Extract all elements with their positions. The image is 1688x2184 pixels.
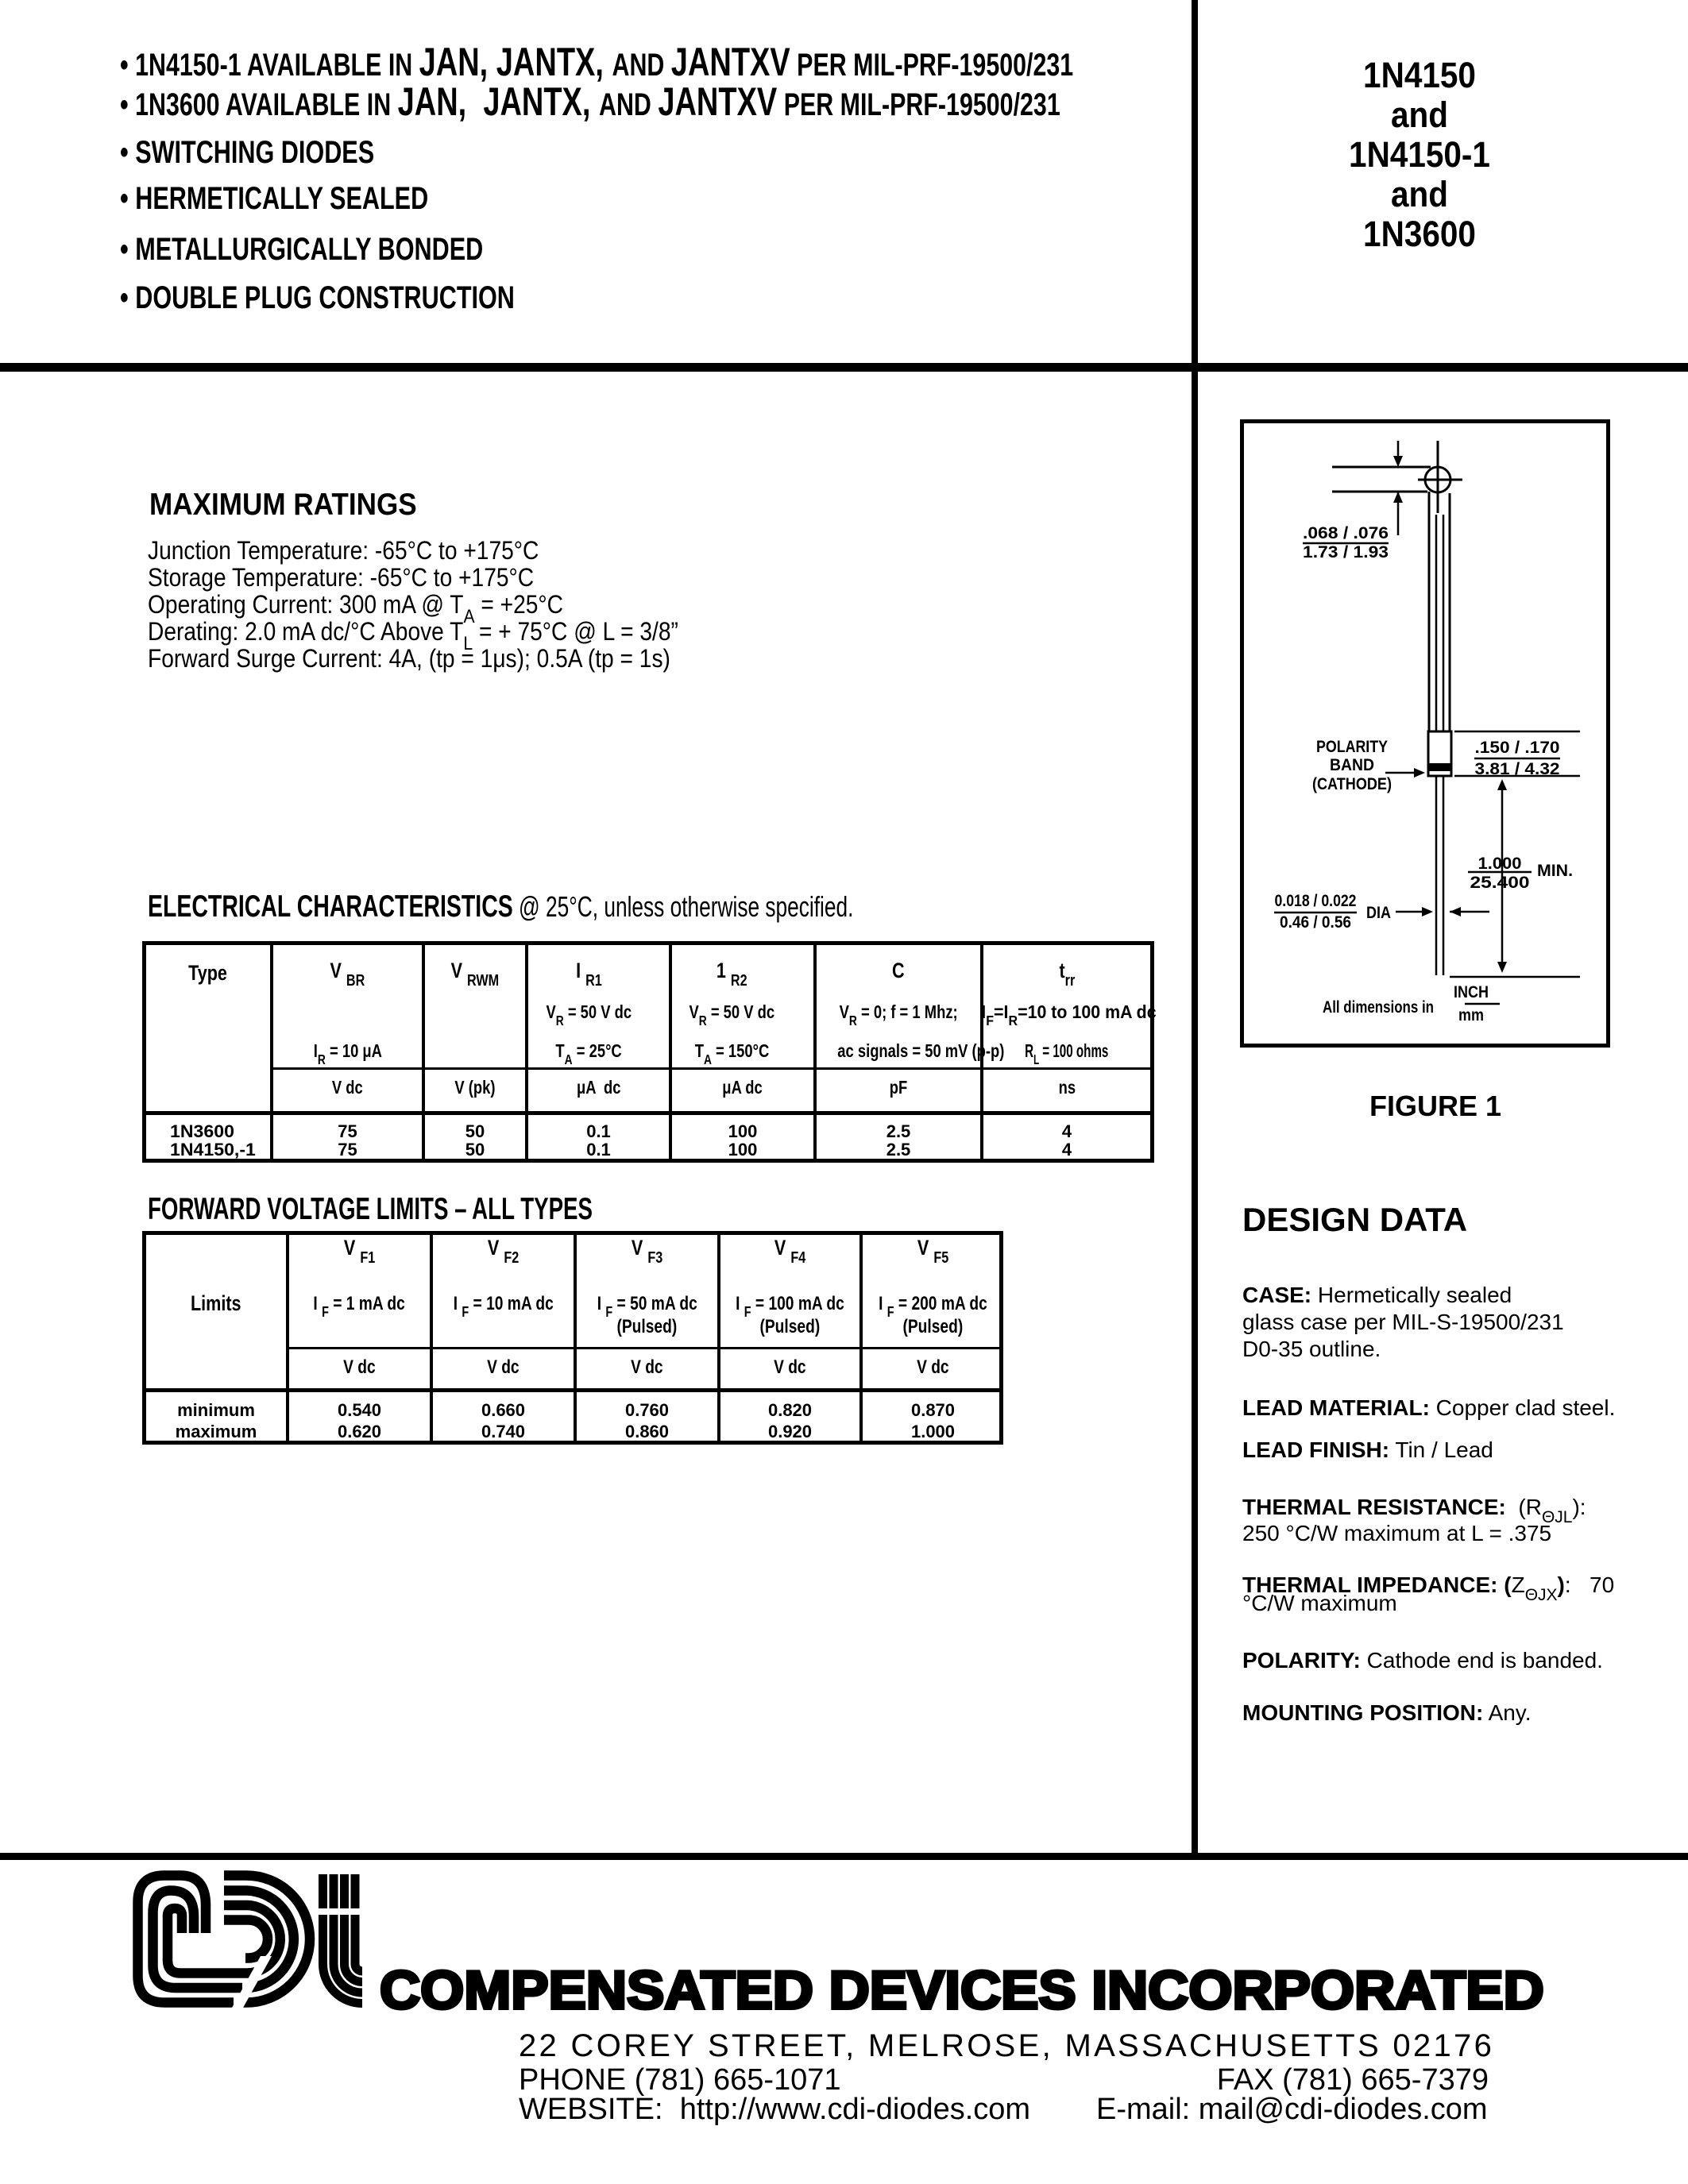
svg-text:(CATHODE): (CATHODE): [1312, 775, 1392, 793]
svg-text:.068 / .076: .068 / .076: [1303, 524, 1389, 542]
svg-text:0.018 / 0.022: 0.018 / 0.022: [1275, 892, 1357, 910]
svg-text:.150 / .170: .150 / .170: [1475, 739, 1560, 757]
svg-text:POLARITY: POLARITY: [1316, 738, 1388, 756]
svg-text:MIN.: MIN.: [1537, 862, 1573, 880]
svg-text:1.73 / 1.93: 1.73 / 1.93: [1303, 543, 1389, 561]
svg-text:All dimensions in: All dimensions in: [1323, 998, 1434, 1017]
svg-text:0.46 / 0.56: 0.46 / 0.56: [1280, 913, 1351, 932]
svg-text:DIA: DIA: [1366, 904, 1391, 922]
svg-text:mm: mm: [1458, 1006, 1484, 1024]
svg-text:3.81 / 4.32: 3.81 / 4.32: [1475, 760, 1560, 778]
svg-text:INCH: INCH: [1454, 983, 1489, 1001]
svg-text:BAND: BAND: [1330, 756, 1374, 774]
svg-text:25.400: 25.400: [1470, 874, 1530, 892]
svg-text:1.000: 1.000: [1478, 855, 1522, 873]
